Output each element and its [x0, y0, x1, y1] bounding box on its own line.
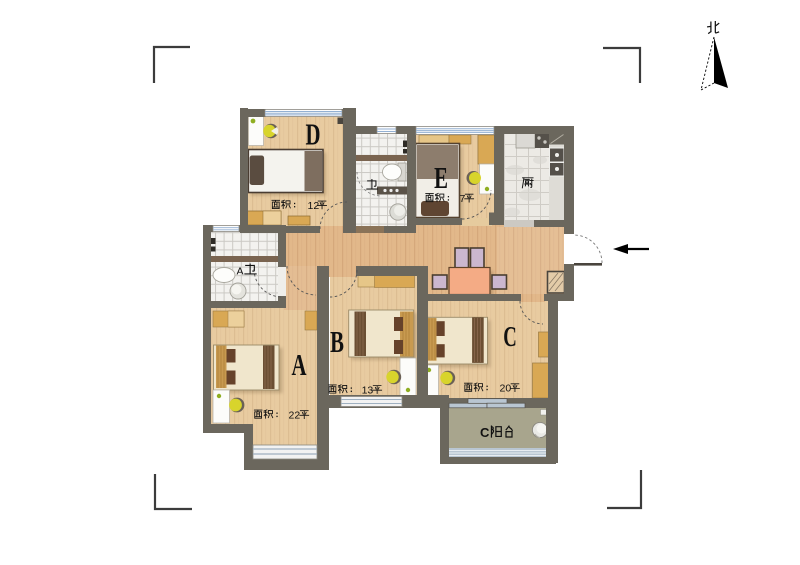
svg-text:A: A	[291, 347, 306, 382]
svg-text:C: C	[503, 323, 517, 354]
svg-text:C: C	[480, 425, 490, 440]
svg-text:B: B	[330, 324, 344, 359]
svg-text:D: D	[305, 116, 320, 151]
svg-text:13: 13	[362, 384, 374, 396]
svg-text:A: A	[237, 266, 244, 278]
svg-text:22: 22	[289, 410, 301, 422]
svg-text:20: 20	[500, 383, 512, 395]
svg-text:E: E	[434, 160, 448, 195]
